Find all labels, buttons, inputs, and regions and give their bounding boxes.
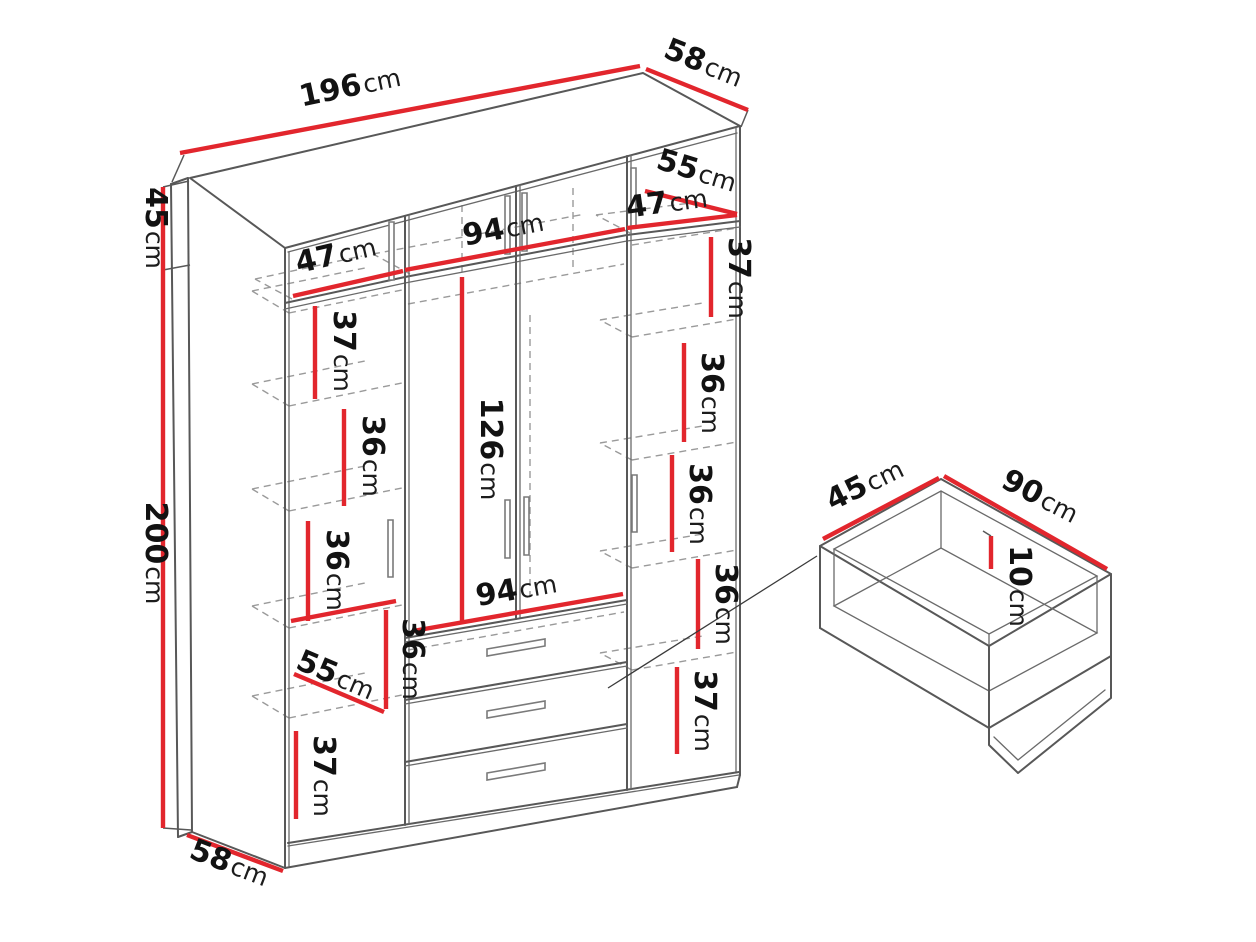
dim-label-right-shelf-1: 37cm <box>721 237 756 319</box>
dim-label-drawer-width: 45cm <box>820 451 909 518</box>
dim-label-body-height: 200cm <box>138 502 173 605</box>
dim-label-depth-top: 58cm <box>659 32 748 95</box>
dim-line-total-width <box>180 66 640 153</box>
dim-label-left-compartment-height: 36cm <box>395 618 430 700</box>
dim-label-left-shelf-1: 37cm <box>326 310 361 392</box>
dim-label-right-shelf-4: 36cm <box>708 563 743 645</box>
dim-label-drawer-height: 10cm <box>1002 545 1037 627</box>
handle-body-door-2 <box>505 500 510 558</box>
handle-drawer-2 <box>487 701 545 718</box>
dim-label-door-height: 126cm <box>473 398 508 501</box>
dim-label-right-shelf-3: 36cm <box>682 463 717 545</box>
dim-label-right-shelf-2: 36cm <box>694 352 729 434</box>
diagram-canvas: 196cm 58cm 45cm 200cm 58cm 47cm 94cm 47c… <box>0 0 1256 942</box>
handle-body-door-4 <box>632 475 637 532</box>
dim-label-upper-height: 45cm <box>138 187 173 269</box>
handle-body-door-1 <box>388 520 393 577</box>
dim-label-top-left-width: 47cm <box>292 228 380 281</box>
dim-label-left-shelf-bottom: 37cm <box>306 735 341 817</box>
dim-label-left-shelf-2: 36cm <box>355 415 390 497</box>
furniture-dimension-diagram: 196cm 58cm 45cm 200cm 58cm 47cm 94cm 47c… <box>0 0 1256 942</box>
handle-body-door-3 <box>524 497 529 555</box>
handle-drawer-3 <box>487 763 545 780</box>
dim-label-left-shelf-3: 36cm <box>319 529 354 611</box>
handle-drawer-1 <box>487 639 545 656</box>
dim-label-left-compartment-width: 55cm <box>291 643 380 707</box>
dim-label-total-width: 196cm <box>296 59 404 115</box>
dim-label-depth-bottom: 58cm <box>185 832 274 894</box>
dim-label-drawer-length: 90cm <box>996 462 1085 530</box>
dim-label-right-shelf-5: 37cm <box>687 670 722 752</box>
